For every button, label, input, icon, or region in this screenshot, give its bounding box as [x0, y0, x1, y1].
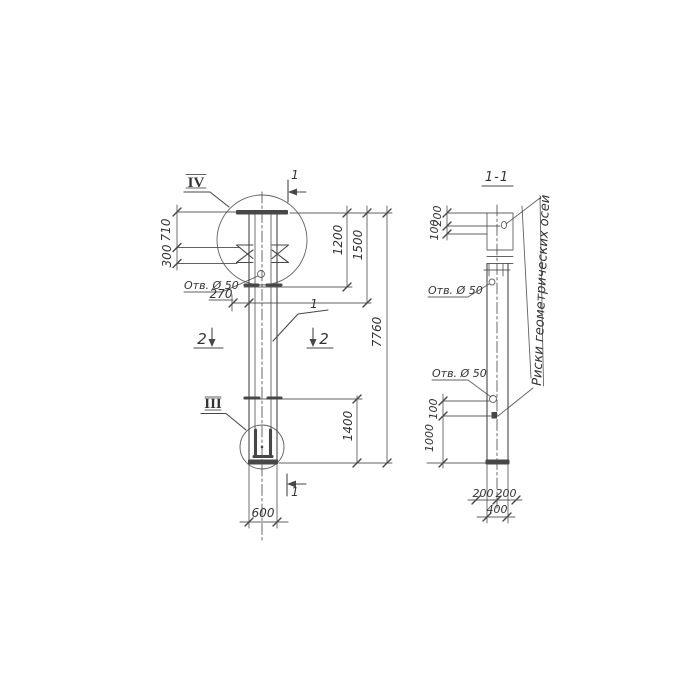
cut-label-2-right: 2	[319, 330, 329, 348]
dim-1200: 1200	[331, 224, 345, 255]
front-view: IV III 1 1 2 2 1 Отв. Ø 50 710 300 270 1…	[159, 168, 392, 543]
cap-plate	[236, 210, 288, 215]
dim-200-left: 200	[473, 487, 494, 500]
technical-drawing: IV III 1 1 2 2 1 Отв. Ø 50 710 300 270 1…	[0, 0, 700, 700]
section-title: 1-1	[485, 170, 509, 185]
dim-200-right: 200	[496, 487, 517, 500]
section-joint	[484, 257, 513, 277]
front-hole	[258, 271, 265, 278]
section-hole-upper	[489, 279, 495, 285]
dim-1400: 1400	[341, 410, 355, 441]
dim-400: 400	[487, 503, 508, 516]
part-callout-label: 1	[310, 297, 318, 311]
dim-100-upper: 100	[428, 220, 441, 241]
section-hole-label-upper: Отв. Ø 50	[428, 284, 483, 297]
axis-risk-mark	[492, 412, 498, 419]
section-column-outline	[486, 264, 510, 465]
dim-600: 600	[252, 506, 275, 520]
cut-label-2-left: 2	[197, 330, 207, 348]
section-hole-label-lower: Отв. Ø 50	[432, 367, 487, 380]
axes-note: Риски геометрических осей	[530, 194, 553, 386]
dim-1500: 1500	[351, 229, 365, 260]
drawing-canvas: IV III 1 1 2 2 1 Отв. Ø 50 710 300 270 1…	[0, 0, 700, 700]
section-top-hole	[501, 221, 506, 228]
front-view-section-marks	[194, 180, 333, 496]
detail-marker-iii: III	[204, 396, 222, 412]
detail-circle-iii-center-dot	[261, 446, 264, 449]
section-top-segment	[487, 213, 513, 250]
dim-7760: 7760	[370, 316, 384, 347]
dim-270: 270	[210, 287, 233, 301]
dim-300: 300	[160, 244, 174, 267]
dim-100-lower: 100	[427, 399, 440, 420]
section-view: 1-1 200 100 Отв. Ø 50 Отв. Ø 50 100 1000…	[423, 170, 553, 523]
corbel-brackets	[237, 245, 289, 263]
dim-710: 710	[159, 218, 173, 241]
cut-label-1-top: 1	[291, 168, 299, 182]
dim-1000: 1000	[423, 424, 436, 452]
section-hole-lower-leader	[432, 380, 491, 397]
cut-label-1-bottom: 1	[291, 485, 299, 499]
detail-marker-iv: IV	[188, 175, 205, 191]
